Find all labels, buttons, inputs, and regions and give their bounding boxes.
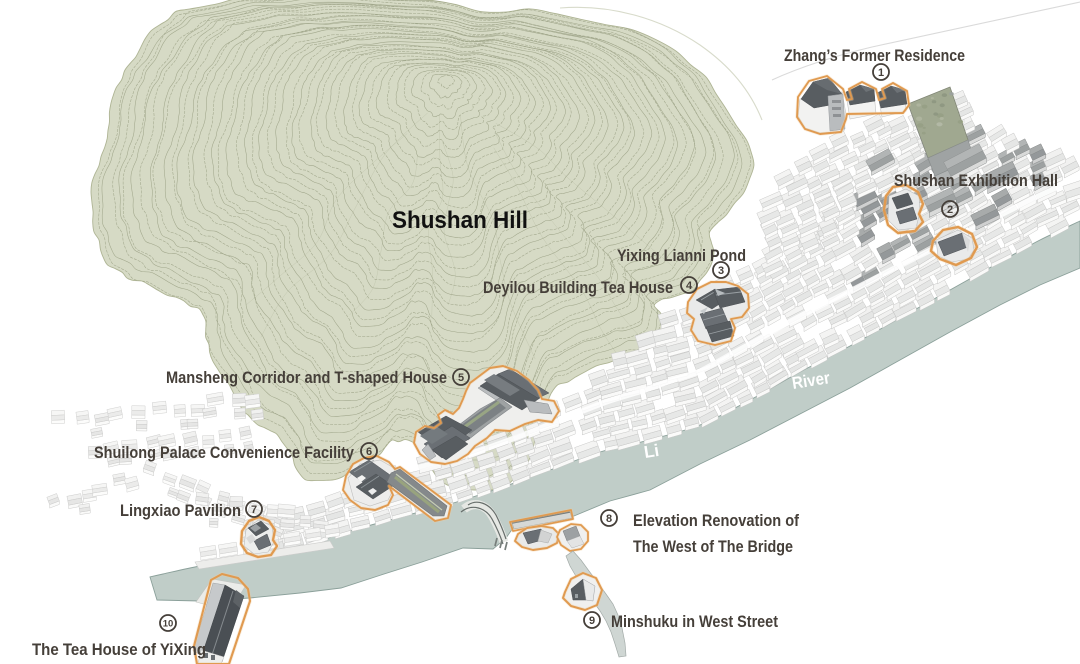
- svg-text:Shushan Hill: Shushan Hill: [392, 207, 528, 234]
- svg-text:Yixing Lianni Pond: Yixing Lianni Pond: [617, 246, 746, 265]
- svg-text:2: 2: [947, 204, 953, 216]
- svg-text:4: 4: [686, 280, 693, 292]
- svg-text:6: 6: [366, 446, 372, 458]
- svg-text:8: 8: [606, 513, 612, 525]
- svg-text:Elevation Renovation of: Elevation Renovation of: [633, 511, 799, 530]
- svg-text:Minshuku in West Street: Minshuku in West Street: [611, 612, 778, 631]
- svg-text:Deyilou Building Tea House: Deyilou Building Tea House: [483, 278, 673, 297]
- svg-text:Zhang’s Former Residence: Zhang’s Former Residence: [784, 46, 965, 65]
- svg-text:The Tea House of YiXing: The Tea House of YiXing: [32, 640, 206, 659]
- svg-text:7: 7: [251, 504, 257, 516]
- svg-text:The West of The Bridge: The West of The Bridge: [633, 537, 793, 556]
- svg-text:Shuilong Palace Convenience Fa: Shuilong Palace Convenience Facility: [94, 443, 354, 462]
- svg-text:9: 9: [589, 615, 595, 627]
- svg-text:Shushan Exhibition Hall: Shushan Exhibition Hall: [894, 171, 1058, 190]
- svg-text:5: 5: [458, 372, 464, 384]
- svg-text:Li: Li: [643, 441, 661, 462]
- svg-text:3: 3: [718, 265, 724, 277]
- svg-text:Lingxiao Pavilion: Lingxiao Pavilion: [120, 501, 241, 520]
- svg-text:1: 1: [878, 67, 884, 79]
- svg-text:Mansheng Corridor and T-shaped: Mansheng Corridor and T-shaped House: [166, 368, 447, 387]
- svg-text:10: 10: [163, 618, 174, 629]
